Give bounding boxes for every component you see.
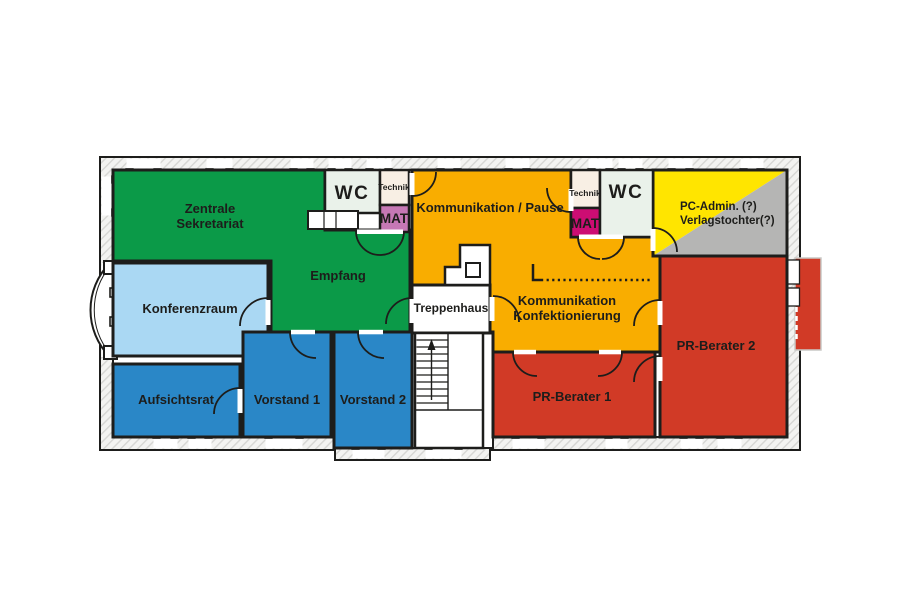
window-glass — [438, 159, 461, 169]
window-glass — [189, 439, 212, 449]
label-kommunikation-pause: Kommunikation / Pause — [416, 200, 563, 215]
window-glass — [681, 439, 703, 449]
window-glass — [367, 159, 392, 169]
label-mat-right: MAT — [571, 216, 600, 231]
window-glass — [154, 439, 178, 449]
label-konferenzraum: Konferenzraum — [142, 301, 237, 316]
door-gap — [238, 389, 243, 413]
door-gap — [579, 235, 623, 240]
window-glass — [669, 159, 693, 169]
label-mat-left: MAT — [380, 211, 409, 226]
label-aufsichtsrat: Aufsichtsrat — [138, 392, 215, 407]
door-gap — [658, 357, 663, 381]
door-gap — [357, 230, 403, 235]
label-zentrale-line1: Zentrale — [185, 201, 236, 216]
room-wc-right — [600, 170, 653, 237]
door-gap — [266, 300, 271, 325]
label-pc-admin-line1: PC-Admin. (?) — [680, 201, 757, 213]
window-glass — [506, 159, 530, 169]
floor-plan-svg: Zentrale Sekretariat Empfang Konferenzra… — [0, 0, 900, 600]
door-gap — [291, 330, 315, 335]
window-glass — [353, 450, 385, 459]
window-glass — [426, 450, 462, 459]
window-glass — [619, 159, 643, 169]
window-glass — [291, 159, 314, 169]
label-wc-right: WC — [609, 182, 644, 203]
label-wc-left: WC — [335, 183, 370, 204]
right-wall-window — [788, 260, 800, 284]
floor-plan-stage: Zentrale Sekretariat Empfang Konferenzra… — [0, 0, 900, 600]
door-gap — [514, 350, 536, 355]
window-glass — [102, 177, 112, 216]
room-vorstand-1 — [243, 332, 331, 437]
window-glass — [207, 159, 233, 169]
door-gap — [651, 229, 656, 251]
label-technik-right: Technik — [569, 188, 601, 198]
label-konfektionierung-line2: Konfektionierung — [513, 308, 621, 323]
label-empfang: Empfang — [310, 268, 366, 283]
door-gap — [658, 301, 663, 325]
label-pr-berater-2: PR-Berater 2 — [677, 338, 756, 353]
room-vorstand-2 — [334, 332, 412, 448]
label-pc-admin-line2: Verlagstochter(?) — [680, 215, 775, 227]
door-gap — [359, 330, 383, 335]
label-treppenhaus: Treppenhaus — [414, 301, 489, 315]
door-gap — [599, 350, 621, 355]
window-glass — [741, 159, 764, 169]
label-technik-left: Technik — [378, 182, 410, 192]
closet-body — [308, 211, 358, 229]
stair-shaft — [415, 333, 483, 448]
door-gap — [490, 297, 495, 321]
label-konfektionierung-line1: Kommunikation — [518, 293, 616, 308]
duct-shaft — [466, 263, 480, 277]
built-in-closet — [308, 211, 358, 229]
window-glass — [606, 439, 628, 449]
label-pr-berater-1: PR-Berater 1 — [533, 389, 612, 404]
window-glass — [329, 159, 352, 169]
right-wall-window — [788, 288, 800, 306]
label-zentrale-line2: Sekretariat — [176, 216, 244, 231]
door-gap — [410, 173, 415, 195]
window-glass — [718, 439, 742, 449]
window-glass — [513, 439, 545, 449]
window-glass — [266, 439, 303, 449]
window-glass — [127, 159, 161, 169]
label-vorstand-1: Vorstand 1 — [254, 392, 320, 407]
window-glass — [589, 159, 613, 169]
label-vorstand-2: Vorstand 2 — [340, 392, 406, 407]
